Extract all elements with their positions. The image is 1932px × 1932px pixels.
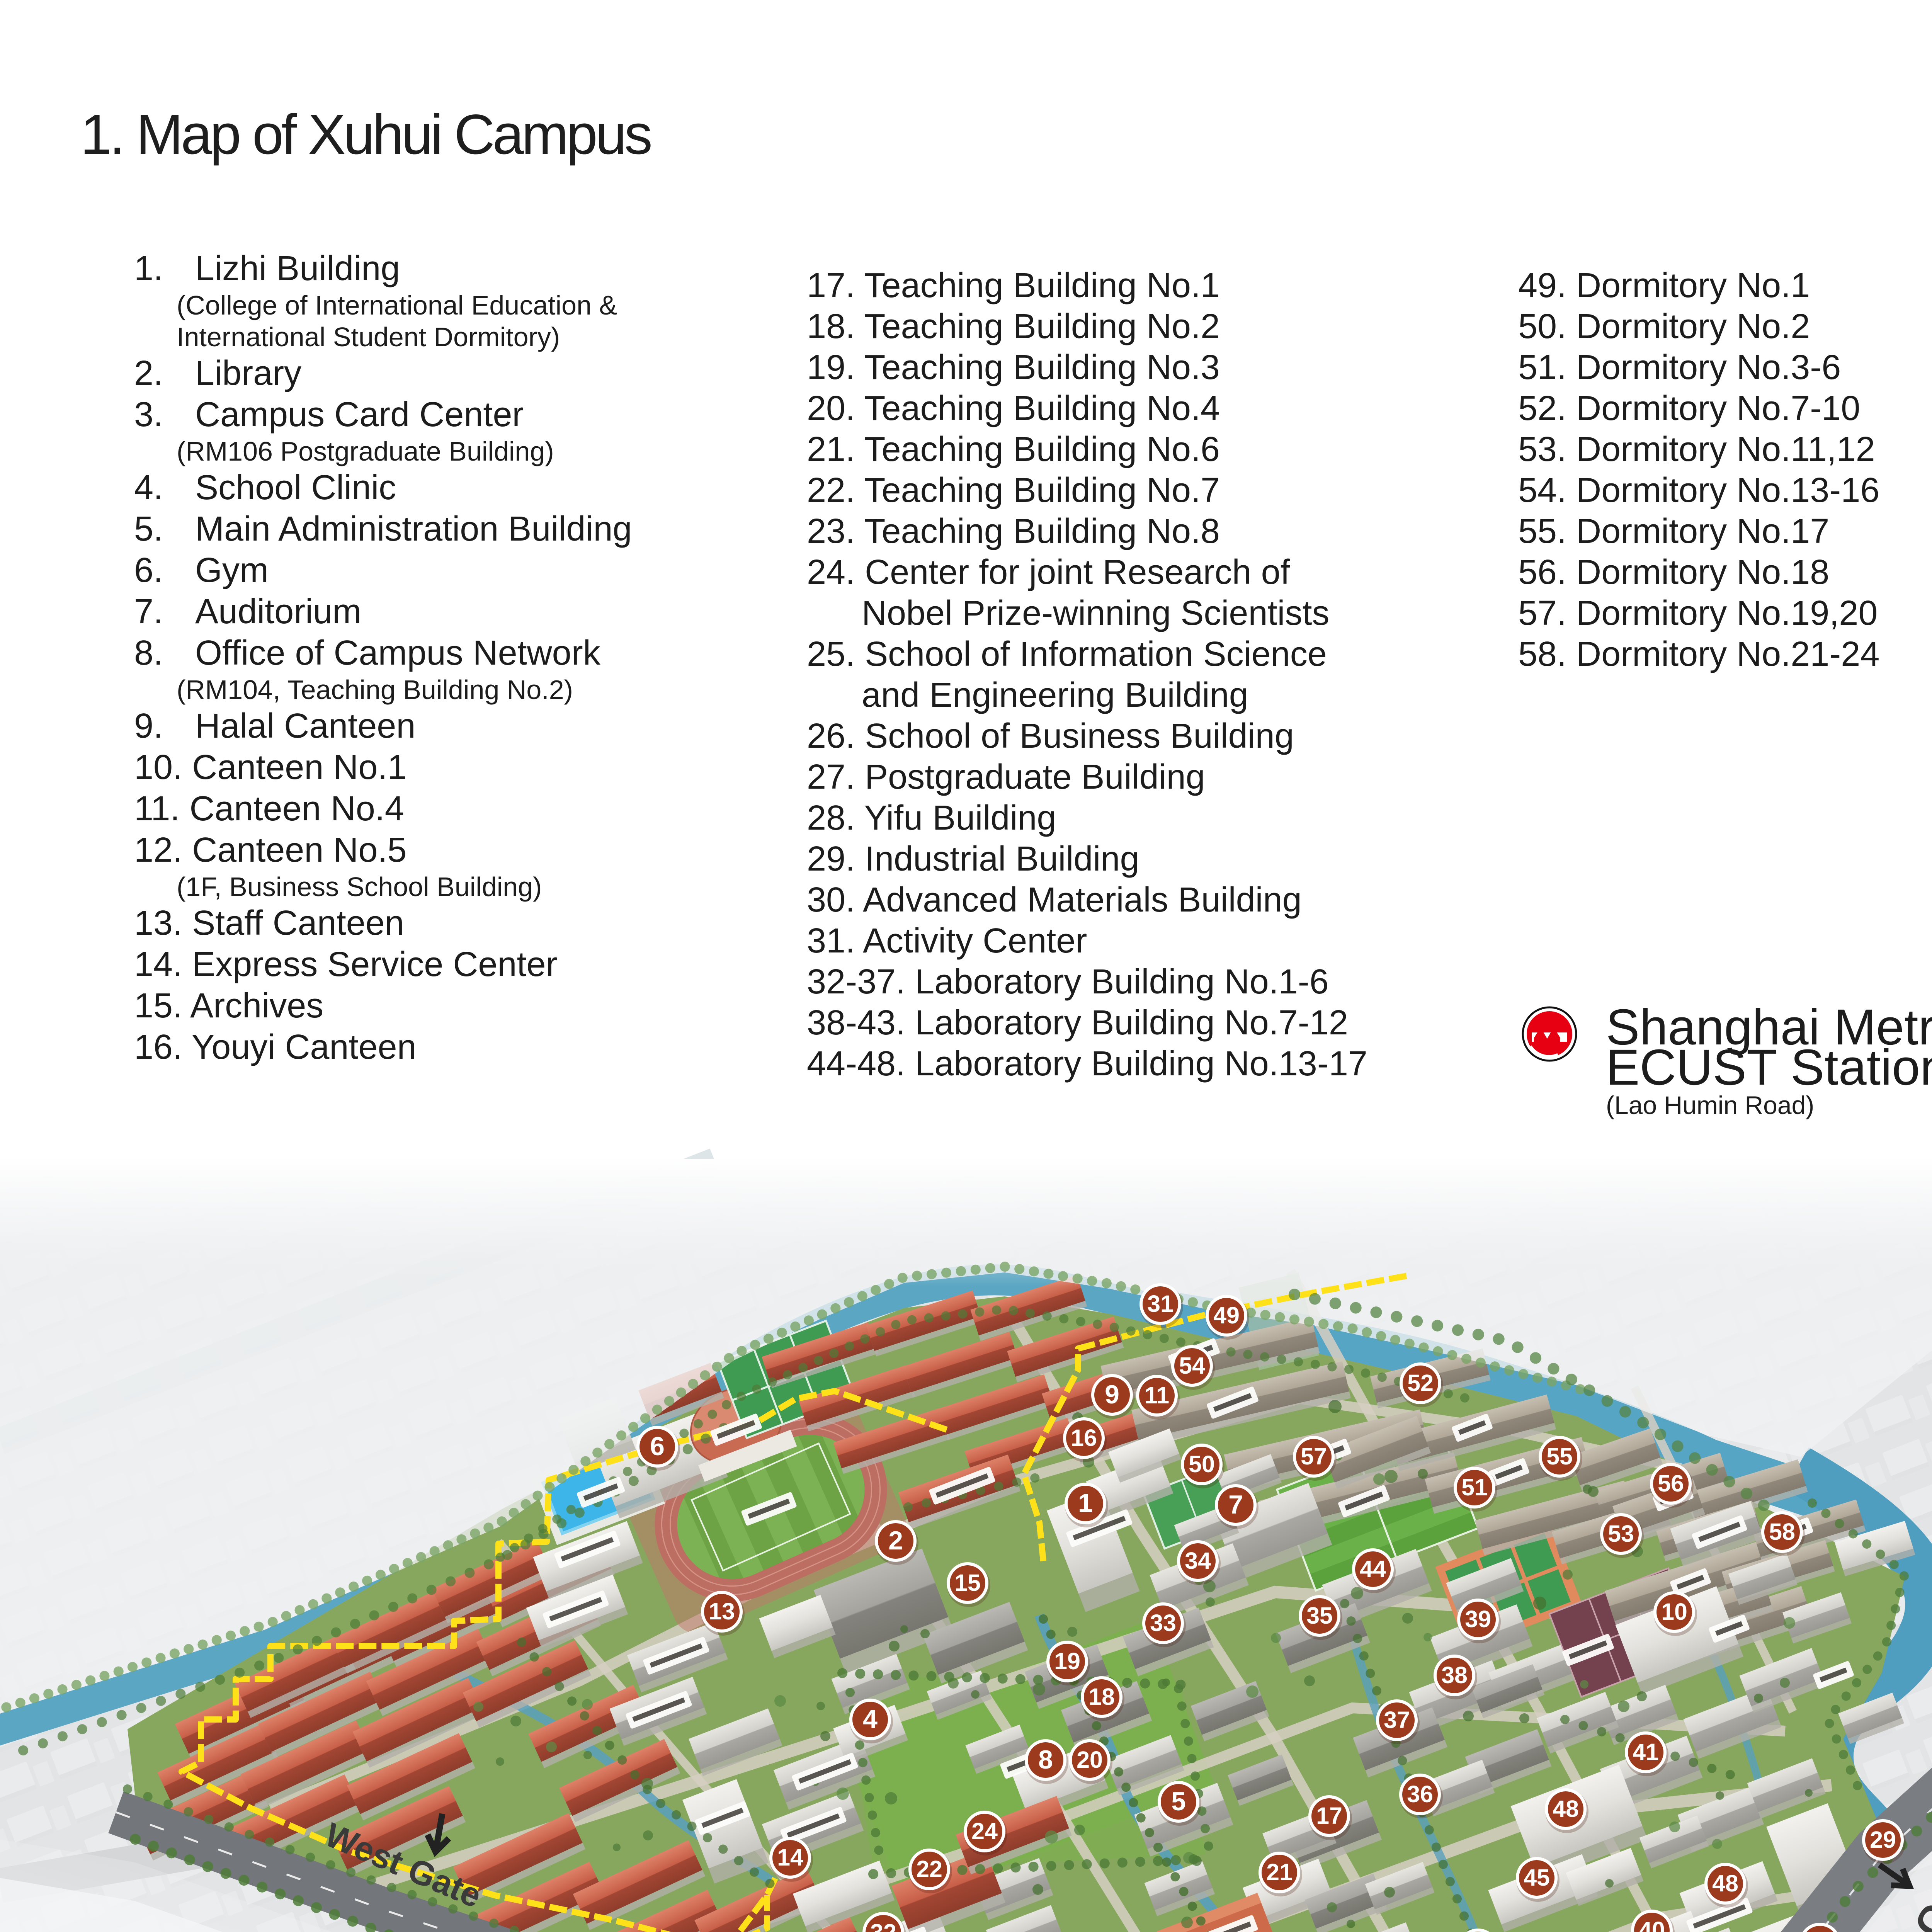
svg-text:30: 30 [1807,1930,1833,1932]
svg-text:37: 37 [1384,1707,1410,1733]
svg-text:40: 40 [1639,1917,1665,1932]
svg-text:15: 15 [954,1570,981,1596]
svg-text:48: 48 [1553,1796,1579,1822]
svg-text:32: 32 [870,1919,896,1932]
svg-text:24: 24 [971,1818,998,1844]
svg-text:39: 39 [1465,1606,1491,1632]
svg-text:22: 22 [916,1856,942,1882]
svg-text:29: 29 [1870,1827,1896,1853]
svg-text:54: 54 [1179,1352,1205,1379]
svg-text:56: 56 [1658,1470,1684,1497]
svg-text:57: 57 [1301,1443,1327,1469]
svg-text:34: 34 [1185,1548,1211,1574]
svg-text:41: 41 [1633,1739,1659,1765]
svg-text:55: 55 [1546,1443,1573,1469]
svg-text:1: 1 [1078,1488,1093,1518]
svg-text:21: 21 [1266,1859,1293,1885]
svg-text:51: 51 [1461,1474,1488,1500]
svg-text:8: 8 [1038,1745,1053,1774]
svg-text:58: 58 [1769,1519,1795,1545]
svg-text:4: 4 [863,1704,878,1734]
svg-text:45: 45 [1524,1864,1550,1891]
svg-text:20: 20 [1077,1747,1103,1773]
svg-text:49: 49 [1213,1302,1240,1328]
svg-text:16: 16 [1071,1425,1097,1451]
svg-text:33: 33 [1150,1610,1176,1636]
svg-text:17: 17 [1316,1803,1342,1829]
svg-text:6: 6 [650,1432,665,1461]
svg-text:14: 14 [777,1844,803,1871]
svg-text:19: 19 [1054,1648,1080,1674]
svg-text:44: 44 [1360,1556,1386,1582]
svg-text:2: 2 [888,1526,903,1555]
svg-text:7: 7 [1228,1490,1243,1519]
svg-text:38: 38 [1441,1662,1468,1688]
svg-text:5: 5 [1171,1787,1186,1816]
svg-text:36: 36 [1407,1781,1433,1807]
svg-text:52: 52 [1407,1370,1434,1396]
svg-text:50: 50 [1189,1451,1215,1477]
svg-text:48: 48 [1712,1870,1738,1896]
svg-text:18: 18 [1088,1684,1115,1710]
svg-text:53: 53 [1608,1520,1634,1547]
svg-text:35: 35 [1306,1602,1333,1629]
svg-text:11: 11 [1145,1382,1170,1408]
svg-text:9: 9 [1105,1380,1119,1409]
svg-text:31: 31 [1147,1291,1173,1317]
svg-text:10: 10 [1661,1599,1687,1625]
svg-text:13: 13 [709,1598,735,1624]
